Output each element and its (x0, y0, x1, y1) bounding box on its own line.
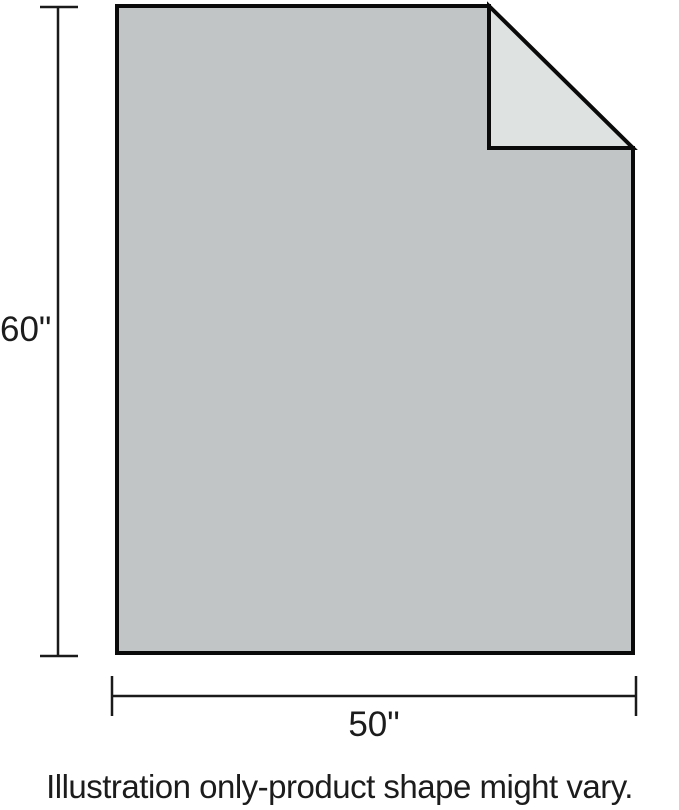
product-dimension-diagram: 60" 50" Illustration only-product shape … (0, 0, 679, 810)
disclaimer-caption: Illustration only-product shape might va… (0, 768, 679, 806)
width-dimension-label: 50" (0, 707, 679, 742)
folded-corner (489, 6, 633, 148)
height-dimension-label: 60" (0, 312, 51, 347)
diagram-canvas (0, 0, 679, 810)
